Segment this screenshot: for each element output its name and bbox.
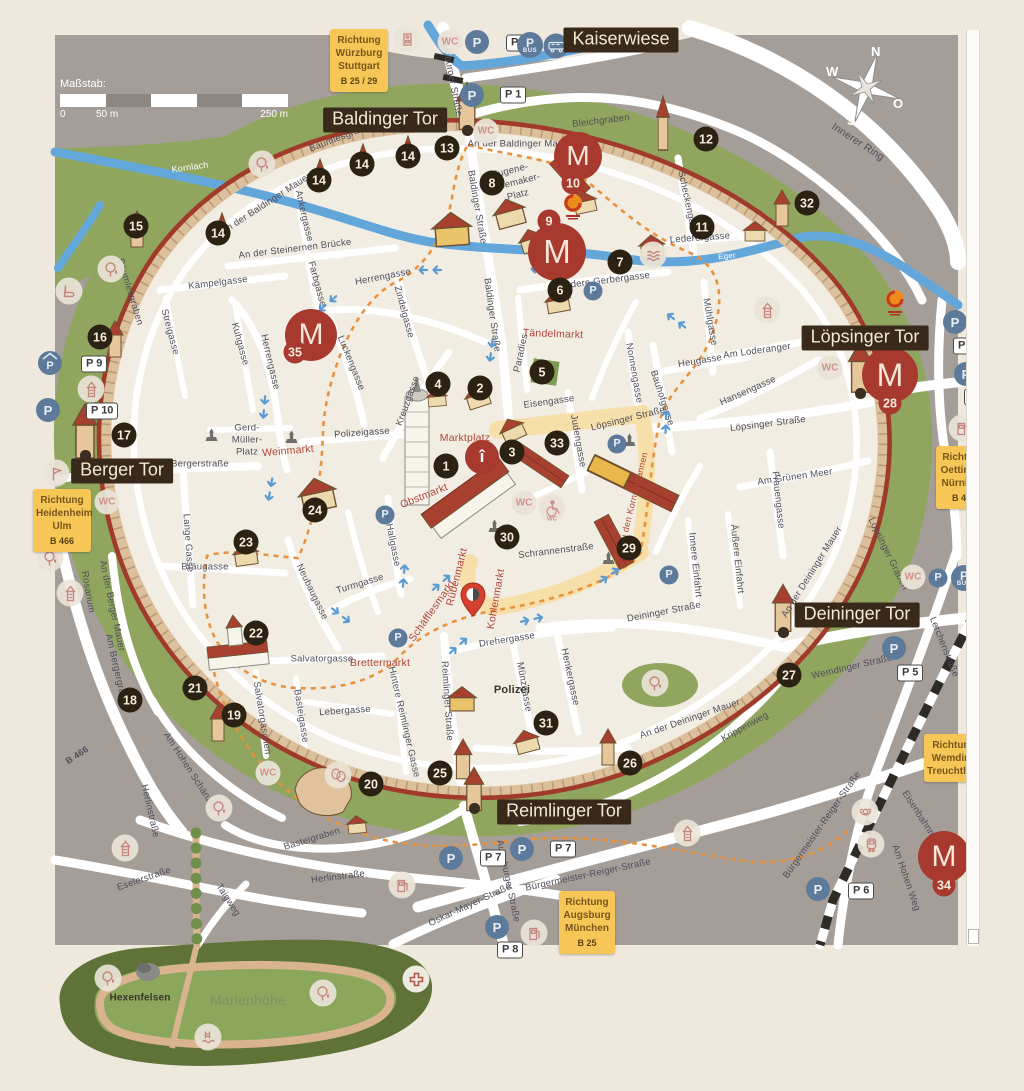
wc-icon: WC [512,491,537,516]
direction-sign: RichtungAugsburgMünchenB 25 [559,891,615,954]
market-label: Bei den Kornschrannen [616,451,649,549]
street-label: Drehergasse [478,630,536,650]
street-label: Nonnengasse [623,342,644,404]
parking-icon-small: P [389,629,408,648]
info-icon: î [465,440,499,474]
sign-line: Augsburg [562,909,612,922]
oneway-arrows [444,629,478,662]
market-label: Obstmarkt [398,481,449,511]
area-label: Marienhöhe [210,992,286,1008]
oneway-arrows [517,609,550,633]
machine-icon [394,26,421,53]
direction-sign: RichtungHeidenheimUlmB 466 [33,489,91,552]
parking-label: P 6 [848,883,874,900]
street-label: Müller- [232,435,262,446]
parking-label: P 10 [86,403,118,420]
tree-icon [310,980,337,1007]
geopark-logo [560,192,586,222]
place-label: Hexenfelsen [109,993,170,1004]
cross-icon [403,966,430,993]
parking-icon: P [465,30,489,54]
poi-marker: 25 [428,761,453,786]
poi-marker: 12 [694,127,719,152]
wc-icon: WC [256,761,281,786]
sign-line: Richtung [333,34,385,47]
poi-marker: 4 [426,372,451,397]
sign-line: Richtung [562,896,612,909]
scrollbar[interactable] [966,30,980,946]
parking-icon-small: P [608,435,627,454]
street-label: Herrengasse [354,266,412,288]
poi-marker-red: 28 [879,392,902,415]
location-pin [458,581,488,619]
street-label: Heugasse [677,352,723,370]
tower-icon [112,835,139,862]
oneway-arrows [257,475,280,508]
poi-marker: 3 [500,440,525,465]
poi-marker: 14 [350,152,375,177]
parking-label: P 7 [480,850,506,867]
sign-route-number: B 25 [562,938,612,950]
poi-marker: 7 [608,250,633,275]
street-label: Wemdinger Straße [810,652,893,681]
street-label: Polizeigasse [334,426,390,441]
poi-marker: 22 [244,621,269,646]
street-label: Gerd- [234,423,259,434]
poi-marker: 32 [795,191,820,216]
gate-label: Reimlinger Tor [497,800,631,825]
parking-label: P 9 [81,356,107,373]
street-label: Deininger Straße [626,599,702,624]
street-label: Ankergasse [293,189,315,242]
fountain-icon [198,422,225,449]
street-label: Eisengasse [523,393,575,411]
street-label: Kreuzgasse [394,375,422,428]
market-label: Tändelmarkt [523,327,584,341]
fuel-icon [521,920,548,947]
parking-icon: P [460,83,484,107]
sign-line: Ulm [36,520,88,533]
parking-label: P 1 [500,87,526,104]
tower-icon [674,820,701,847]
poi-marker-red: 9 [538,210,561,233]
street-label: Lebergasse [319,704,371,719]
sign-line: München [562,922,612,935]
street-label: Hansengasse [718,374,778,409]
sign-route-number: B 466 [36,536,88,548]
scale-segments [60,94,288,107]
scale-title: Maßstab: [60,78,288,90]
street-label: Hintere Reimlinger Gasse [386,665,422,778]
poi-marker: 21 [183,676,208,701]
compass-o: O [893,96,903,111]
street-label: Herlinstraße [310,868,365,886]
masks-icon [325,762,352,789]
oneway-arrows [658,405,677,436]
street-label: Salvatorgasse [291,654,354,665]
tree-icon [249,151,276,178]
parking-label: P 8 [497,942,523,959]
market-label: Kohlenmarkt [485,568,507,630]
street-label: Bergerstraße [171,459,229,470]
parking-icon-small: P [929,569,948,588]
poi-marker: 14 [396,144,421,169]
street-label: Herlinstraße [139,783,162,838]
place-label: Polizei [494,684,530,696]
sign-route-number: B 25 / 29 [333,76,385,88]
poi-marker: 33 [545,431,570,456]
street-label: Reimlinger Straße [439,661,456,742]
poi-marker: 2 [468,376,493,401]
town-map: Würzburger StraßeBleichgrabenInnerer Rin… [0,0,1024,1091]
poi-marker: 20 [359,772,384,797]
tower-icon [754,297,781,324]
compass-w: W [826,64,838,79]
street-label: Luckengasse [335,334,367,392]
poi-marker: 24 [303,498,328,523]
poi-marker: 31 [534,711,559,736]
wc-icon: WC [438,30,463,55]
street-label: Krippenweg [720,710,771,745]
bus-parking-icon: PBUS [517,32,543,58]
oneway-arrows [659,302,694,334]
scale-tick-0: 0 [60,109,66,120]
parking-icon: P [510,837,534,861]
poi-marker: 23 [234,530,259,555]
tower-icon [78,376,105,403]
parking-icon: P [38,351,62,375]
street-label: Judengasse [568,414,588,468]
scale-tick-250: 250 m [260,109,288,120]
scale-bar: Maßstab: 0 50 m 250 m [60,78,288,123]
poi-marker: 26 [618,751,643,776]
scrollbar-thumb[interactable] [968,929,979,944]
tree-icon [206,795,233,822]
gate-label: Baldinger Tor [323,108,447,133]
poi-marker-red: 10 [562,172,585,195]
parking-icon-small: P [584,282,603,301]
street-label: Eselerstraße [116,865,173,894]
poi-marker: 14 [307,168,332,193]
parking-icon: P [943,310,967,334]
street-label: Äußere Einfahrt [728,524,746,594]
street-label: Schrannenstraße [518,541,595,561]
tower-icon [57,580,84,607]
compass-n: N [871,44,880,59]
poi-marker-red: 35 [284,341,307,364]
parking-label: P 5 [897,665,923,682]
horn-icon [852,799,879,826]
parking-icon: P [882,636,906,660]
poi-marker: 16 [88,325,113,350]
street-label: Mühlgasse [700,298,719,347]
parking-icon: P [36,398,60,422]
street-label: Bräugasse [181,562,228,573]
poi-marker: 8 [480,171,505,196]
street-label: Bürgermeister-Reiger-Straße [781,769,863,880]
street-label: Taigweg [214,882,243,918]
street-label: Basteigasse [291,688,310,743]
sign-line: Stuttgart [333,60,385,73]
oneway-arrows [324,602,359,635]
poi-marker-red: 34 [933,874,956,897]
tree-icon [642,670,669,697]
poi-marker: 17 [112,423,137,448]
pool-icon [195,1024,222,1051]
train-icon [858,831,885,858]
sign-line: Würzburg [333,47,385,60]
skate-icon [56,278,83,305]
street-label: Zindelgasse [392,285,416,339]
poi-marker: 15 [124,214,149,239]
fountain-icon [278,424,305,451]
museum-marker: M [528,223,586,281]
street-label: Streigasse [159,308,182,356]
accessible-wc-icon: WC [539,495,566,522]
sign-line: Richtung [36,494,88,507]
oneway-arrows [396,558,417,589]
geopark-logo [882,288,908,318]
gate-label: Kaiserwiese [563,28,678,53]
oneway-arrows [478,336,500,368]
poi-marker: 1 [434,454,459,479]
poi-marker: 29 [617,536,642,561]
road-number-label: B 466 [64,744,90,766]
poi-marker: 13 [435,136,460,161]
street-label: Kuhgasse [229,321,251,366]
street-label: Am Grünen Meer [757,466,833,487]
parking-icon: P [485,915,509,939]
wc-icon: WC [95,490,120,515]
poi-marker: 19 [222,703,247,728]
street-label: Salvatorgäschen [251,681,273,756]
direction-sign: RichtungWürzburgStuttgartB 25 / 29 [330,29,388,92]
street-label: Am Loderanger [723,341,792,361]
parking-label: P 7 [550,841,576,858]
street-label: Herrengasse [258,333,281,391]
street-label: Innere Einfahrt [686,532,704,598]
street-label: Henkergasse [559,647,582,706]
compass-s: S [847,113,856,128]
gate-label: Berger Tor [71,459,173,484]
scale-tick-50: 50 m [96,109,118,120]
river-label: Kornlach [171,159,209,174]
market-label: Brettermarkt [350,657,410,669]
poi-marker: 30 [495,525,520,550]
oneway-arrows [413,259,443,277]
parking-icon: P [806,877,830,901]
tree-icon [95,965,122,992]
compass-rose: N W O S [816,38,920,142]
street-label: Basteigraben [282,825,341,853]
wc-icon: WC [901,565,926,590]
street-label: Lerchenstraße [927,615,961,678]
street-label: Bürgermeister-Reiger-Straße [524,856,651,893]
page-margin [978,0,1024,1091]
poi-marker: 11 [690,215,715,240]
street-label: Turmgasse [335,572,385,597]
wc-icon: WC [474,119,499,144]
poi-marker: 27 [777,663,802,688]
street-label: Kämpelgasse [188,274,249,292]
street-label: Platz [236,447,258,458]
tree-icon [98,256,125,283]
river-label: Eger [718,251,736,262]
gate-label: Deininger Tor [795,603,920,628]
parking-icon-small: P [660,566,679,585]
gate-label: Löpsinger Tor [802,326,929,351]
oneway-arrows [252,393,273,424]
poi-marker: 14 [206,221,231,246]
street-label: Löpsinger Straße [730,414,807,434]
poi-marker: 18 [118,688,143,713]
sign-line: Heidenheim [36,507,88,520]
poi-marker: 6 [548,278,573,303]
river-label: Eger [331,250,349,261]
poi-marker: 5 [530,360,555,385]
flag-icon [43,460,70,487]
waves-icon [640,242,667,269]
fuel-icon [389,872,416,899]
street-label: Bleichgraben [572,112,631,130]
parking-icon-small: P [376,506,395,525]
parking-icon: P [439,846,463,870]
wc-icon: WC [818,356,843,381]
